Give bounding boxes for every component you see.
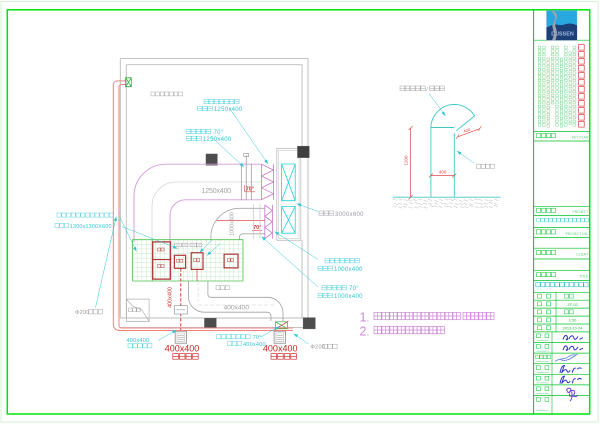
svg-text:CLIENT: CLIENT: [576, 252, 588, 256]
svg-text:400x400: 400x400: [165, 344, 200, 354]
svg-text:400x400: 400x400: [263, 344, 298, 354]
svg-text:3000x600: 3000x600: [335, 212, 364, 218]
svg-text:1300x1300X600: 1300x1300X600: [70, 224, 112, 230]
svg-text:PROJECT NO.: PROJECT NO.: [566, 232, 589, 236]
svg-text:1000x400: 1000x400: [334, 267, 363, 273]
svg-text:.: .: [367, 327, 370, 338]
svg-text:1000x400: 1000x400: [230, 212, 236, 236]
svg-text:KEY PLAN: KEY PLAN: [572, 136, 589, 140]
svg-text:2013-10-24: 2013-10-24: [563, 326, 584, 331]
svg-text:70°: 70°: [246, 186, 254, 192]
svg-text:PROJECT: PROJECT: [572, 210, 588, 214]
svg-text:70°: 70°: [253, 335, 262, 341]
svg-text:TITLE: TITLE: [579, 275, 589, 279]
svg-text:70°: 70°: [214, 130, 224, 136]
svg-text:1250x400: 1250x400: [202, 188, 232, 195]
svg-text:400: 400: [439, 170, 447, 175]
svg-text:70°: 70°: [349, 286, 359, 292]
svg-text:1: 1: [360, 310, 367, 324]
svg-text:1250x400: 1250x400: [214, 107, 243, 113]
svg-text:.: .: [367, 313, 370, 324]
svg-text:400x400: 400x400: [127, 338, 150, 344]
svg-text:Φ200: Φ200: [75, 310, 90, 316]
svg-text:400x400: 400x400: [243, 342, 266, 348]
svg-text:1000x400: 1000x400: [334, 294, 363, 300]
svg-text:400x400: 400x400: [168, 287, 174, 308]
svg-text:2: 2: [360, 324, 367, 338]
svg-text:1200: 1200: [404, 155, 409, 166]
svg-text:400x400: 400x400: [224, 305, 250, 312]
svg-text:1:50: 1:50: [569, 318, 577, 323]
svg-text:ZF-02: ZF-02: [567, 302, 577, 307]
